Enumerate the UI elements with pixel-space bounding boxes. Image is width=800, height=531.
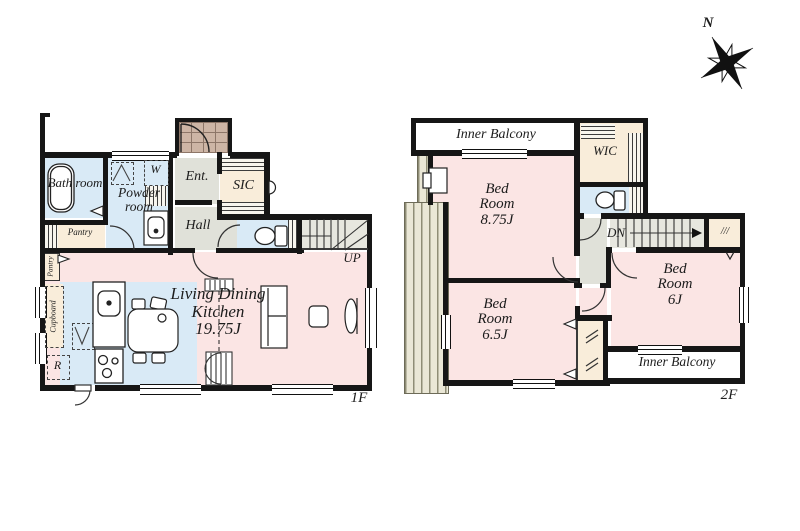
hanger-marks-label: /// (712, 227, 738, 237)
hall-door-arc (193, 253, 218, 278)
bedroom3-name: Bed Room (469, 297, 521, 328)
toilet-1f-icon (255, 226, 287, 246)
sic-label: SIC (222, 179, 265, 193)
kitchen-back-door-icon (75, 385, 91, 405)
compass-rose-icon (686, 22, 768, 104)
floor-plan-canvas: Bath room Powder room Pantry Pantry W En… (0, 0, 800, 531)
inner-balcony-bottom-label: Inner Balcony (622, 355, 732, 369)
bath-room-label: Bath room (46, 176, 104, 189)
stairs-up-label: UP (335, 251, 369, 264)
powder-door-arc (110, 226, 134, 250)
kitchen-counter-icon (93, 282, 125, 347)
bedroom2-size: 6J (649, 293, 701, 308)
inner-balcony-top-label: Inner Balcony (426, 128, 566, 142)
hanger-closet-arrow-icon (726, 252, 734, 259)
front-door-icon (181, 124, 209, 152)
laundry-basket-icon (113, 165, 130, 181)
ldk-label: Living Dining Kitchen 19.75J (156, 285, 280, 338)
bedroom3-size: 6.5J (469, 328, 521, 343)
small-pantry-door-icon (58, 255, 69, 263)
floor1-label: 1F (344, 391, 374, 406)
powder-room-label: Powder room (106, 186, 172, 214)
toilet-2f-door-arc (580, 219, 601, 240)
wic-label: WIC (583, 144, 627, 157)
bedroom3-door-arc (582, 288, 605, 311)
pantry-label: Pantry (56, 228, 104, 237)
hall-label: Hall (176, 219, 220, 233)
cupboard-label: Cupboard (45, 286, 62, 346)
bedroom1-label: Bed Room 8.75J (471, 182, 523, 228)
bifold-door-marks-icon (586, 330, 598, 371)
sic-door-tab-icon (269, 181, 276, 194)
tv-icon (345, 298, 357, 334)
stairs-up-icon (302, 219, 368, 250)
side-table-icon (309, 306, 328, 327)
closet-open-arrow-top (564, 319, 576, 329)
bedroom1-door-arc (553, 257, 578, 282)
compass-north-label: N (697, 16, 719, 31)
refrigerator-label: R (48, 359, 67, 371)
vanity-sink-icon (144, 211, 168, 245)
pantry-side-label: Pantry (42, 252, 58, 280)
bedroom1-niche-icon (423, 168, 447, 193)
ldk-name: Living Dining Kitchen (156, 285, 280, 320)
stairs-down-label: DN (600, 226, 632, 239)
dishwasher-icon (75, 327, 89, 344)
ldk-size: 19.75J (156, 320, 280, 338)
bedroom2-door-arc (612, 253, 637, 278)
bedroom3-label: Bed Room 6.5J (469, 297, 521, 343)
toilet-2f-icon (596, 191, 625, 210)
bedroom1-name: Bed Room (471, 182, 523, 213)
floor2-label: 2F (714, 388, 744, 403)
bath-door-icon (91, 206, 103, 216)
bedroom2-name: Bed Room (649, 262, 701, 293)
bedroom1-size: 8.75J (471, 213, 523, 228)
washer-label: W (144, 163, 167, 175)
toilet-1f-door-arc (218, 225, 240, 247)
stove-icon (95, 349, 123, 383)
bedroom2-label: Bed Room 6J (649, 262, 701, 308)
closet-open-arrow-bottom (564, 369, 576, 379)
entrance-label: Ent. (176, 170, 218, 184)
